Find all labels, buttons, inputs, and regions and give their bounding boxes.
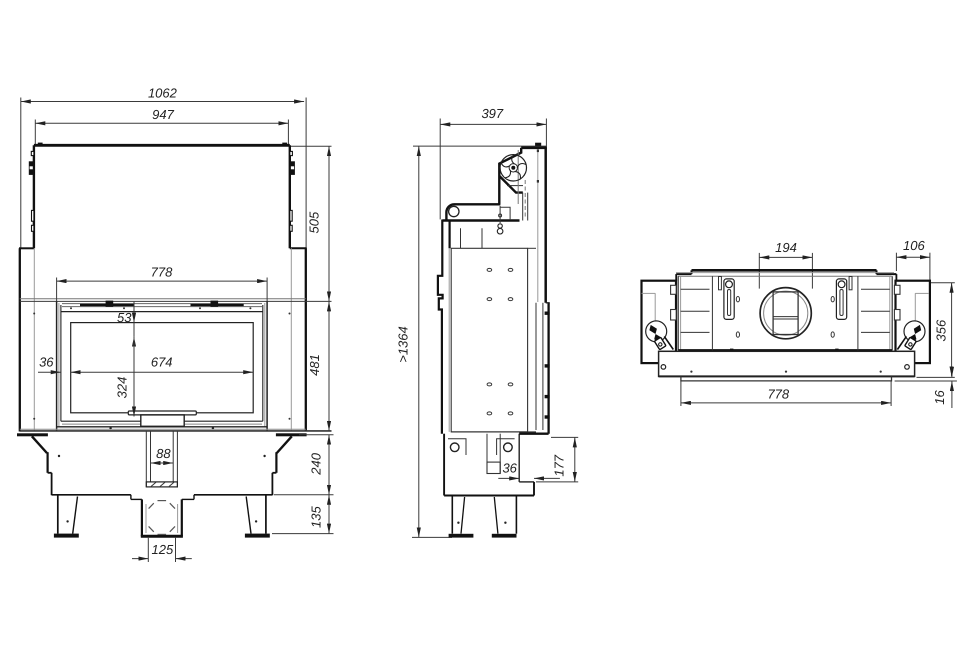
svg-text:36: 36 <box>502 461 517 476</box>
svg-text:125: 125 <box>152 542 174 557</box>
svg-text:324: 324 <box>114 377 129 399</box>
svg-text:778: 778 <box>767 386 789 401</box>
svg-text:88: 88 <box>156 446 171 461</box>
svg-text:356: 356 <box>933 319 948 341</box>
svg-text:>1364: >1364 <box>395 326 410 363</box>
svg-text:177: 177 <box>552 454 567 476</box>
svg-text:481: 481 <box>307 354 322 376</box>
svg-text:505: 505 <box>307 211 322 233</box>
svg-text:674: 674 <box>151 355 173 370</box>
svg-text:1062: 1062 <box>148 85 178 100</box>
svg-text:397: 397 <box>481 106 503 121</box>
svg-text:194: 194 <box>775 240 797 255</box>
svg-text:135: 135 <box>308 505 323 527</box>
svg-text:106: 106 <box>903 238 925 253</box>
svg-text:240: 240 <box>308 452 323 475</box>
svg-text:36: 36 <box>39 355 54 370</box>
svg-text:778: 778 <box>151 265 173 280</box>
svg-text:16: 16 <box>932 390 947 405</box>
svg-text:53: 53 <box>117 310 132 325</box>
svg-text:947: 947 <box>152 107 174 122</box>
